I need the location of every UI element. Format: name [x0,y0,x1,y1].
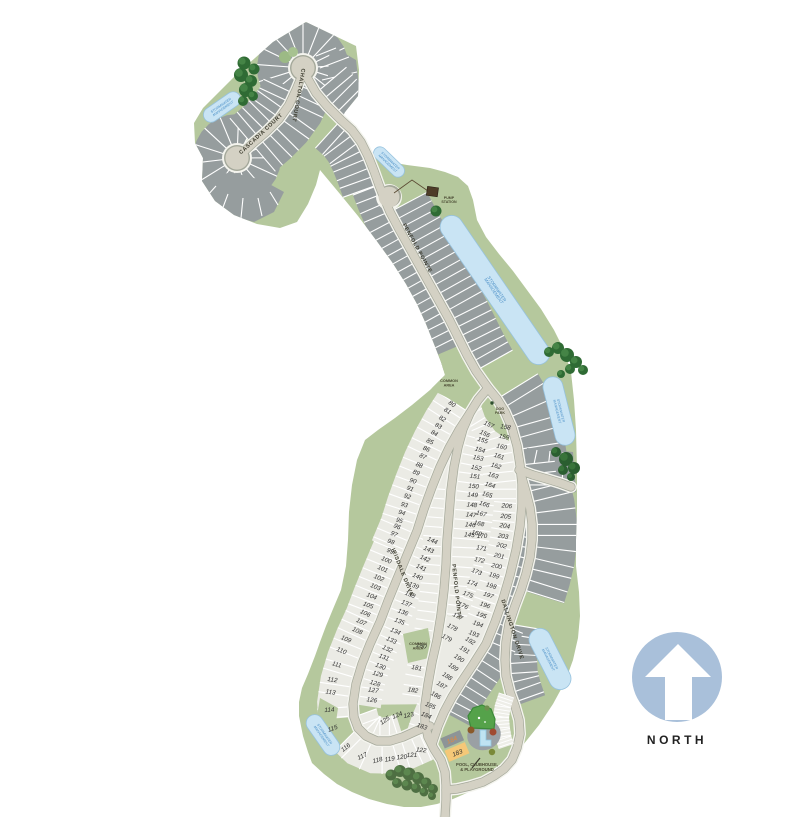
svg-text:114: 114 [324,706,335,714]
svg-text:COMMON: COMMON [440,379,458,383]
svg-text:AREA: AREA [444,383,455,387]
svg-text:151: 151 [469,473,480,481]
svg-text:205: 205 [499,513,512,521]
svg-text:AREA: AREA [413,646,424,650]
svg-text:148: 148 [466,501,478,509]
svg-text:COMMON: COMMON [409,642,427,646]
svg-text:170: 170 [477,533,488,540]
svg-text:149: 149 [467,491,479,499]
svg-text:PARK: PARK [495,411,505,415]
svg-text:STATION: STATION [441,200,457,204]
svg-text:122: 122 [416,746,428,754]
svg-text:150: 150 [468,482,480,490]
svg-text:206: 206 [500,502,513,510]
svg-text:119: 119 [384,755,395,763]
svg-text:NORTH: NORTH [647,733,707,747]
svg-text:& PLAYGROUND: & PLAYGROUND [460,767,494,772]
